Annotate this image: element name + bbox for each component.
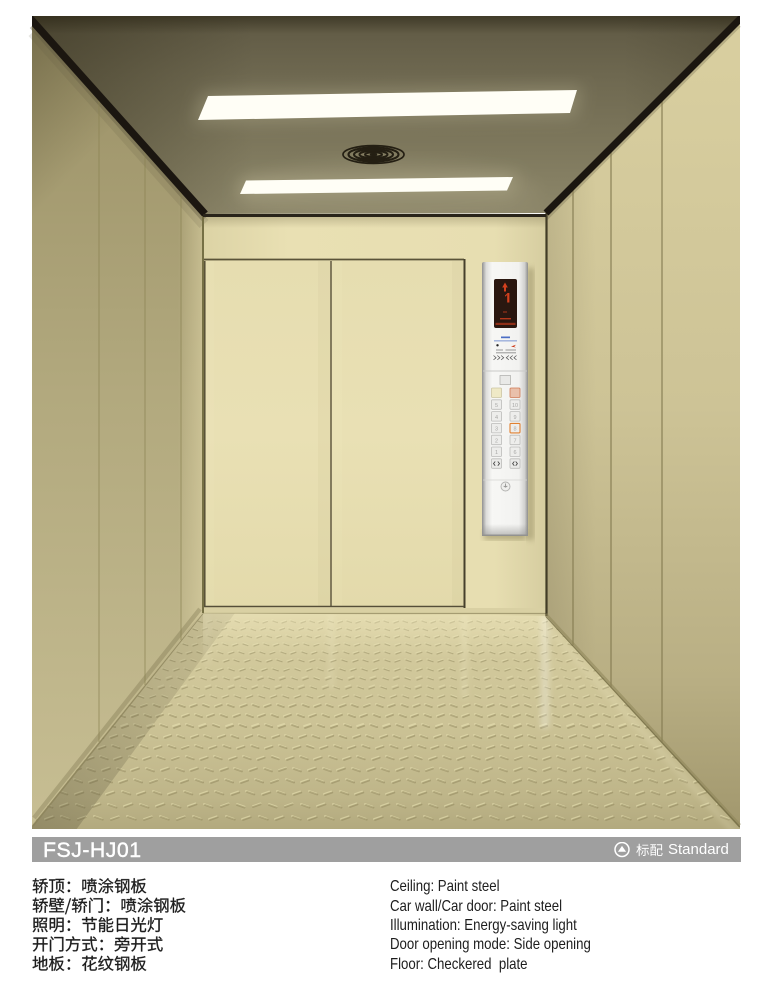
svg-text:1: 1 [495,450,498,456]
svg-text:5: 5 [495,403,498,409]
svg-text:2: 2 [495,438,498,444]
svg-text:4: 4 [495,415,498,421]
svg-text:3: 3 [495,427,498,433]
svg-text:9: 9 [513,415,516,421]
svg-text:10: 10 [512,403,518,409]
svg-text:6: 6 [513,450,516,456]
svg-text:8: 8 [513,427,516,433]
svg-text:7: 7 [513,438,516,444]
